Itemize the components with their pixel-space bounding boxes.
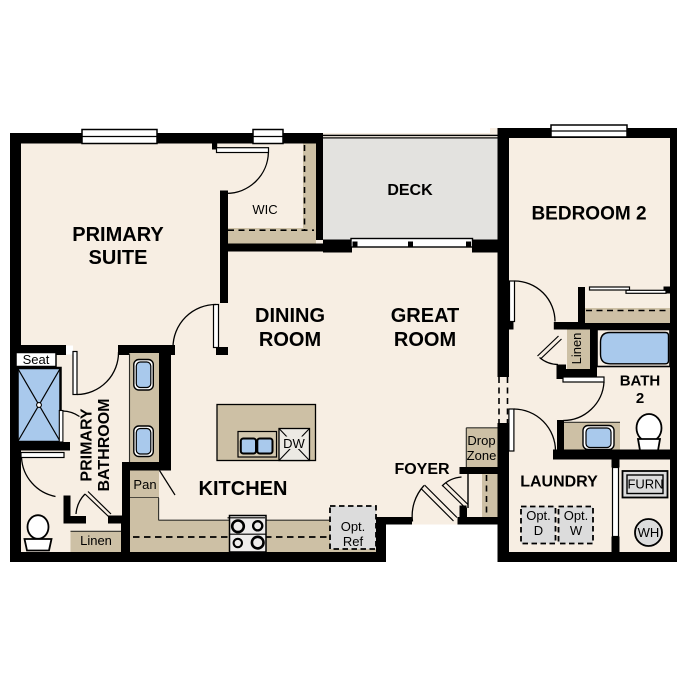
- svg-text:WH: WH: [638, 525, 660, 540]
- svg-text:Linen: Linen: [569, 333, 584, 365]
- svg-text:ROOM: ROOM: [259, 329, 321, 351]
- svg-text:2: 2: [636, 390, 644, 407]
- svg-text:Seat: Seat: [23, 352, 50, 367]
- svg-text:PRIMARY: PRIMARY: [79, 408, 96, 482]
- svg-text:Ref: Ref: [343, 534, 364, 549]
- svg-text:DECK: DECK: [387, 182, 433, 199]
- svg-text:FURN: FURN: [627, 477, 663, 492]
- svg-text:Drop: Drop: [467, 433, 495, 448]
- svg-text:Linen: Linen: [80, 533, 112, 548]
- svg-text:Opt.: Opt.: [526, 508, 551, 523]
- svg-text:KITCHEN: KITCHEN: [199, 478, 288, 500]
- svg-text:Zone: Zone: [467, 448, 497, 463]
- svg-text:FOYER: FOYER: [394, 461, 450, 478]
- svg-text:GREAT: GREAT: [391, 305, 460, 327]
- svg-text:DW: DW: [283, 436, 305, 451]
- svg-text:SUITE: SUITE: [89, 247, 148, 269]
- svg-text:BEDROOM 2: BEDROOM 2: [531, 204, 646, 225]
- svg-text:Opt.: Opt.: [564, 508, 589, 523]
- svg-text:BATH: BATH: [620, 373, 661, 390]
- svg-text:W: W: [570, 523, 583, 538]
- svg-text:Pan: Pan: [133, 477, 156, 492]
- svg-text:BATHROOM: BATHROOM: [96, 398, 113, 491]
- svg-text:D: D: [534, 523, 543, 538]
- svg-text:Opt.: Opt.: [341, 519, 366, 534]
- svg-text:DINING: DINING: [255, 305, 325, 327]
- svg-text:PRIMARY: PRIMARY: [72, 224, 164, 246]
- svg-text:WIC: WIC: [252, 202, 277, 217]
- svg-text:LAUNDRY: LAUNDRY: [520, 474, 598, 491]
- svg-text:ROOM: ROOM: [394, 329, 456, 351]
